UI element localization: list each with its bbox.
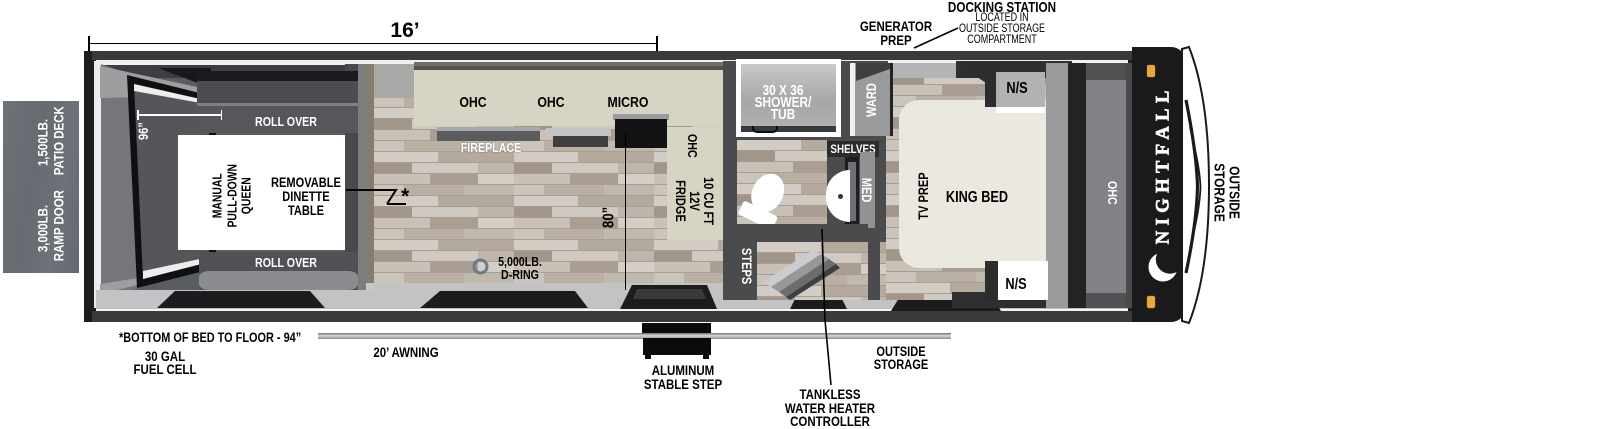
svg-text:*: * xyxy=(401,185,410,208)
